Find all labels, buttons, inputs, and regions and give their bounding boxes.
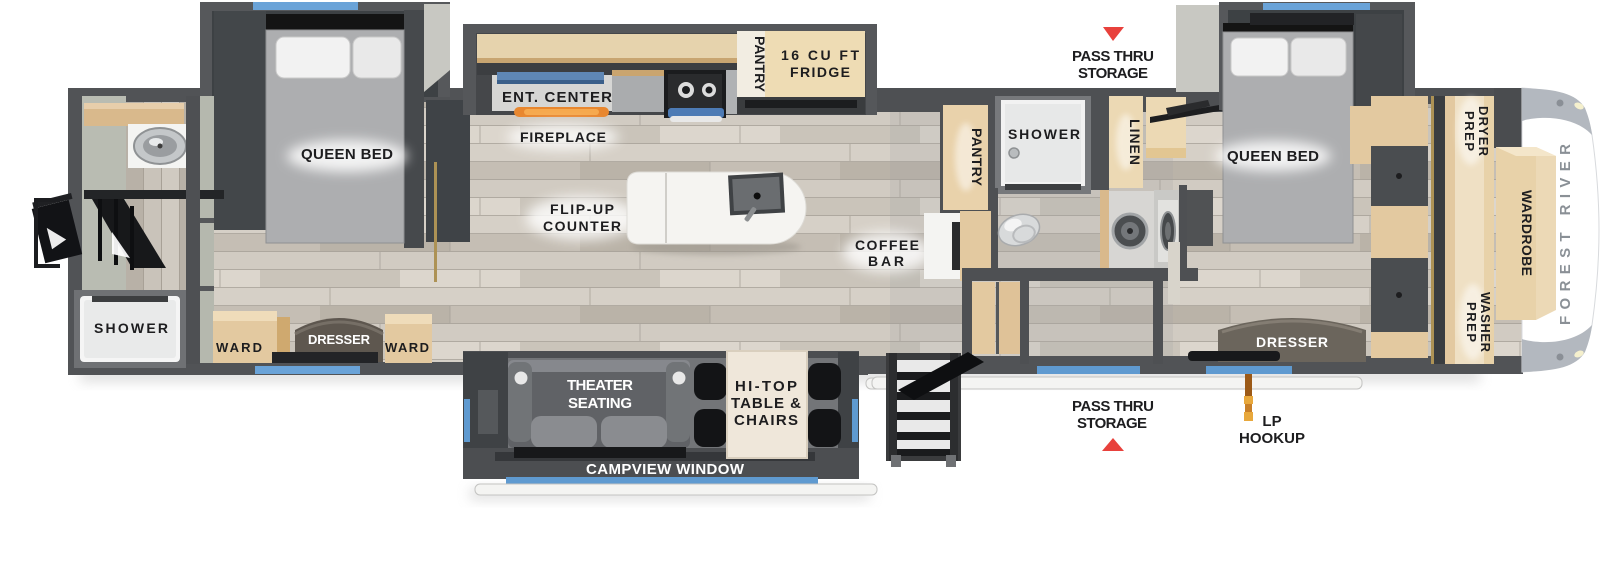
svg-text:CAMPVIEW WINDOW: CAMPVIEW WINDOW [586,461,745,478]
svg-text:CHAIRS: CHAIRS [734,412,798,429]
svg-text:HOOKUP: HOOKUP [1239,430,1305,447]
svg-text:DRESSER: DRESSER [1256,334,1328,350]
svg-text:DRESSER: DRESSER [308,332,371,347]
svg-text:FOREST RIVER: FOREST RIVER [1557,141,1574,325]
svg-text:LP: LP [1262,413,1281,430]
svg-text:STORAGE: STORAGE [1078,65,1148,82]
svg-text:COFFEE: COFFEE [855,237,919,253]
svg-text:WARDROBE: WARDROBE [1519,190,1535,276]
svg-text:TABLE &: TABLE & [731,395,801,412]
svg-text:LINEN: LINEN [1127,119,1143,165]
svg-text:PANTRY: PANTRY [969,128,985,187]
svg-text:PASS THRU: PASS THRU [1072,398,1154,415]
svg-text:16 CU FT: 16 CU FT [781,47,859,63]
svg-text:QUEEN BED: QUEEN BED [301,146,393,163]
svg-text:SEATING: SEATING [568,395,632,412]
svg-text:PREP: PREP [1462,111,1477,151]
svg-text:HI-TOP: HI-TOP [735,378,797,395]
svg-text:FIREPLACE: FIREPLACE [520,129,606,145]
svg-text:WARD: WARD [216,340,262,355]
svg-text:STORAGE: STORAGE [1077,415,1147,432]
svg-text:DRYER: DRYER [1476,106,1491,157]
svg-text:QUEEN BED: QUEEN BED [1227,148,1319,165]
svg-text:PASS THRU: PASS THRU [1072,48,1154,65]
svg-text:SHOWER: SHOWER [1008,126,1080,142]
svg-text:WASHER: WASHER [1478,292,1493,353]
svg-text:FLIP-UP: FLIP-UP [550,201,614,217]
svg-text:COUNTER: COUNTER [543,218,621,234]
svg-text:FRIDGE: FRIDGE [790,64,850,80]
svg-text:SHOWER: SHOWER [94,320,168,336]
svg-text:BAR: BAR [868,253,904,269]
svg-text:WARD: WARD [385,340,429,355]
svg-text:THEATER: THEATER [567,377,633,394]
svg-text:PREP: PREP [1464,302,1479,342]
svg-text:ENT. CENTER: ENT. CENTER [502,89,612,106]
